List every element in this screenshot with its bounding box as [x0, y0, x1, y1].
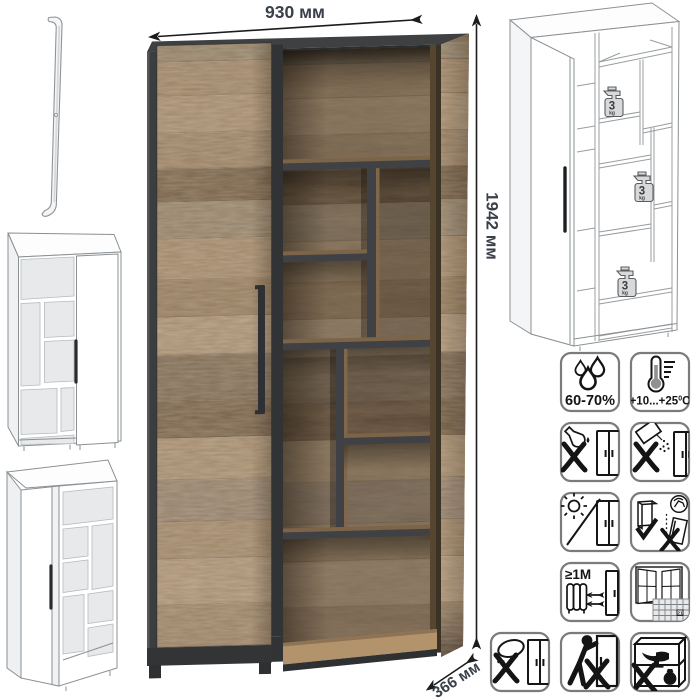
svg-text:+10...+250C: +10...+250C	[630, 396, 691, 408]
svg-text:930 мм: 930 мм	[265, 2, 325, 22]
svg-text:60-70%: 60-70%	[565, 393, 615, 409]
svg-text:366 мм: 366 мм	[430, 659, 484, 700]
svg-text:1942 мм: 1942 мм	[483, 192, 502, 260]
svg-text:≥1M: ≥1M	[565, 567, 591, 582]
svg-text:21: 21	[677, 611, 683, 617]
